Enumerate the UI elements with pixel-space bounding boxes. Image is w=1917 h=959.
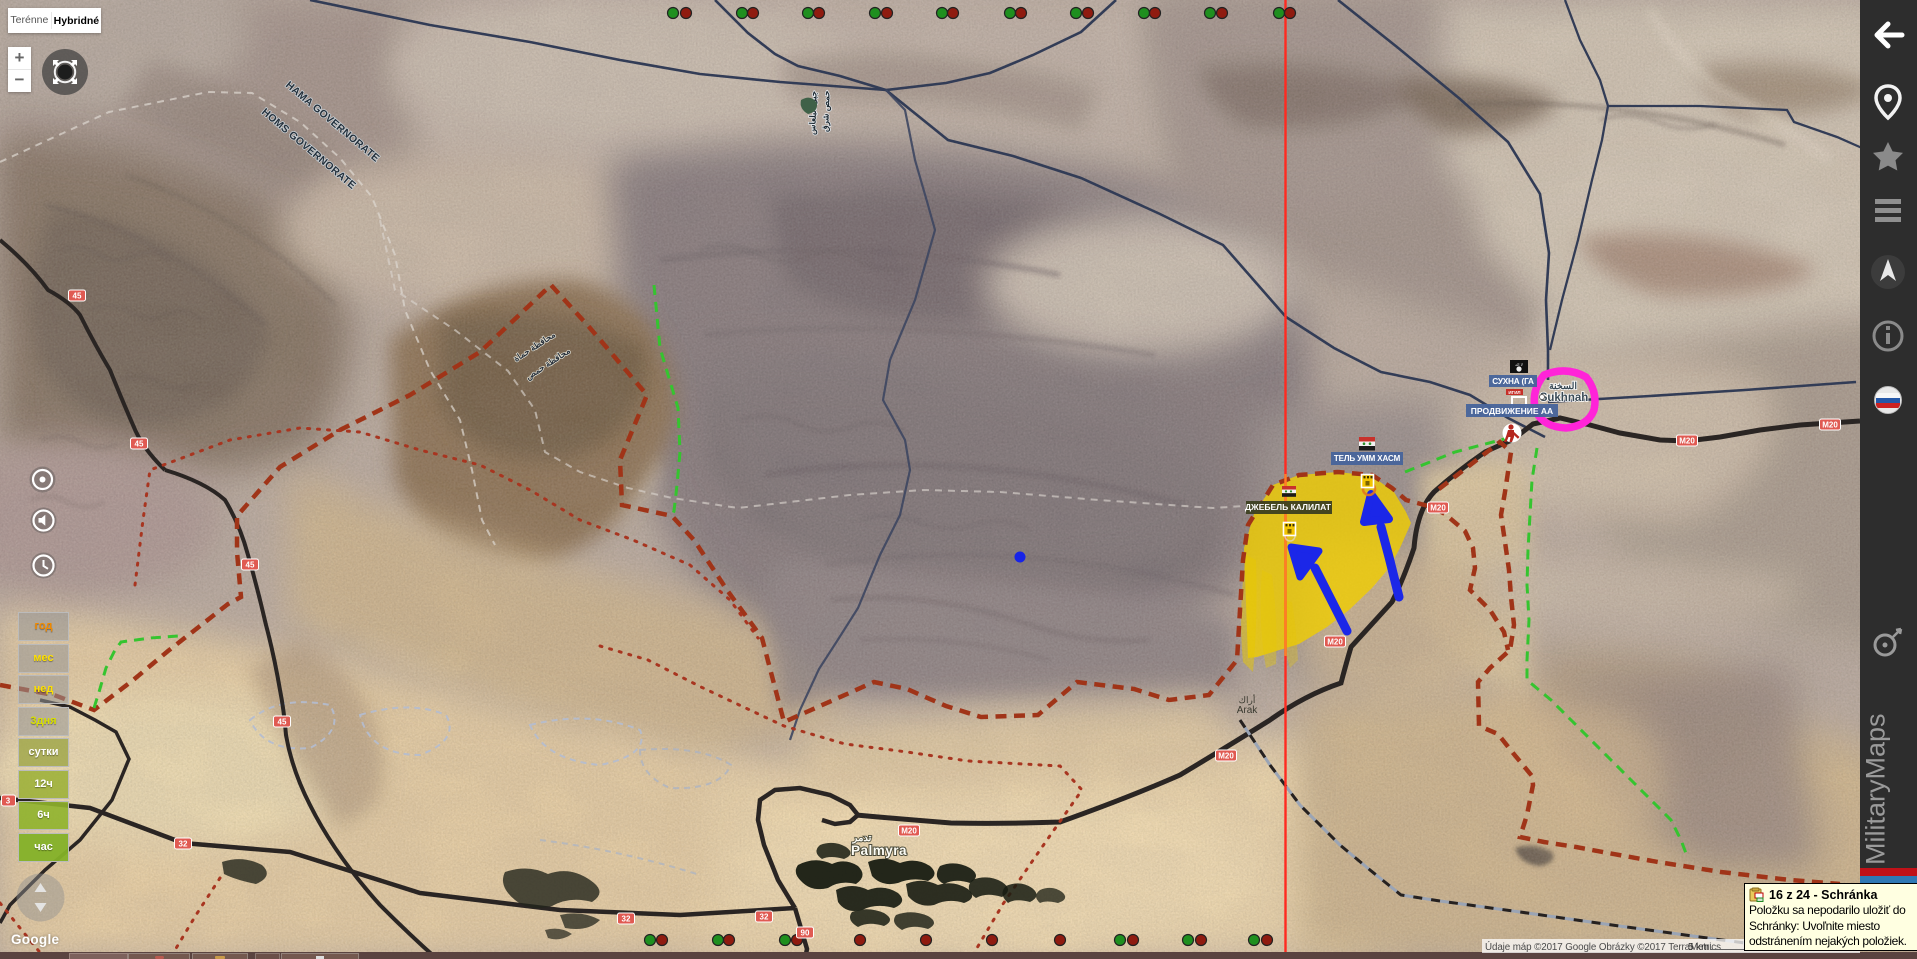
svg-text:45: 45 — [73, 292, 82, 301]
svg-text:32: 32 — [622, 915, 631, 924]
svg-text:M20: M20 — [1679, 437, 1695, 446]
svg-text:Arak: Arak — [1237, 705, 1259, 716]
svg-text:32: 32 — [760, 913, 769, 922]
svg-text:45: 45 — [278, 718, 287, 727]
svg-text:ДЖЕБЕЛЬ КАЛИЛАТ: ДЖЕБЕЛЬ КАЛИЛАТ — [1245, 502, 1332, 512]
svg-text:Sukhnah: Sukhnah — [1540, 392, 1589, 404]
svg-text:M20: M20 — [1822, 421, 1838, 430]
svg-text:ПРОДВИЖЕНИЕ АА: ПРОДВИЖЕНИЕ АА — [1471, 406, 1553, 416]
svg-text:Palmyra: Palmyra — [851, 843, 907, 858]
svg-text:M20: M20 — [901, 827, 917, 836]
svg-text:45: 45 — [246, 561, 255, 570]
svg-text:M20: M20 — [1327, 638, 1343, 647]
svg-text:СУХНА (ГА: СУХНА (ГА — [1492, 377, 1534, 386]
svg-text:32: 32 — [179, 840, 188, 849]
svg-text:3: 3 — [6, 797, 11, 806]
svg-text:السخنة: السخنة — [1549, 381, 1577, 392]
svg-text:ИГИЛ: ИГИЛ — [1508, 390, 1520, 395]
svg-text:M20: M20 — [1218, 752, 1234, 761]
svg-text:ТЕЛЬ УММ ХАСМ: ТЕЛЬ УММ ХАСМ — [1334, 454, 1401, 463]
svg-text:45: 45 — [135, 440, 144, 449]
svg-text:90: 90 — [801, 929, 810, 938]
svg-text:M20: M20 — [1430, 504, 1446, 513]
svg-text:لا اله: لا اله — [1515, 362, 1523, 367]
